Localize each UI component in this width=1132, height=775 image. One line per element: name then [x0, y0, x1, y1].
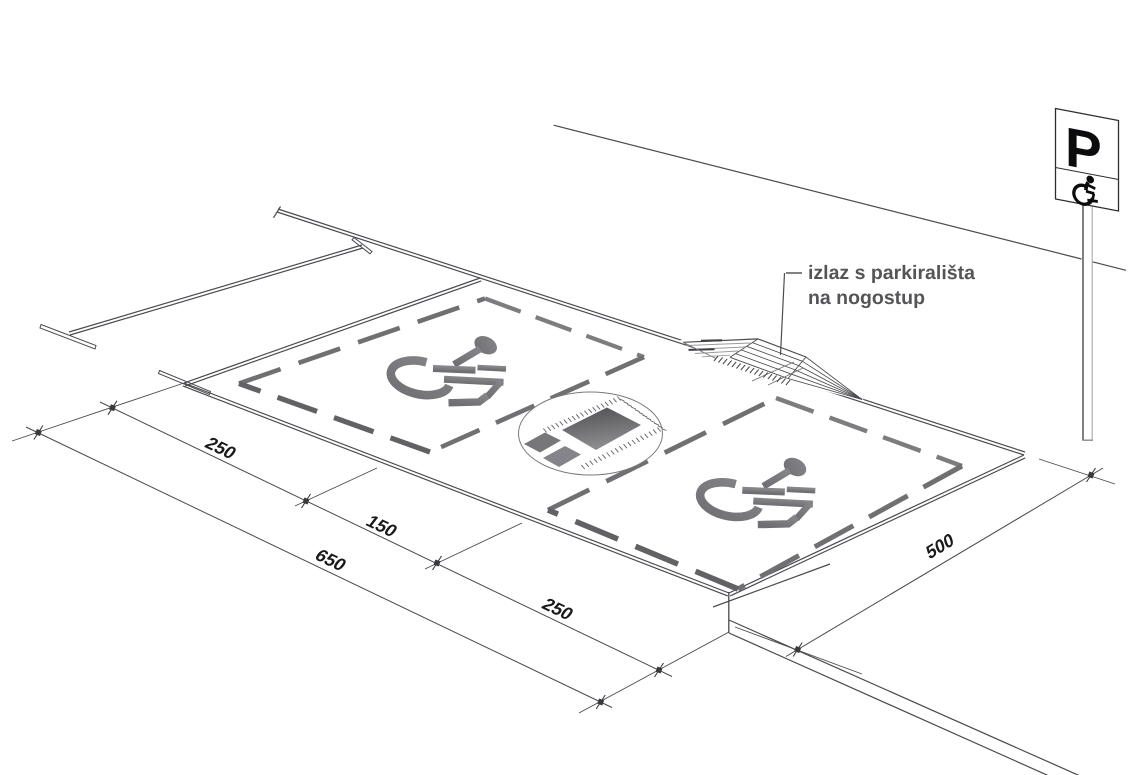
svg-text:izlaz s parkirališta: izlaz s parkirališta: [808, 262, 975, 284]
svg-text:na nogostup: na nogostup: [808, 287, 925, 309]
svg-text:P: P: [1065, 115, 1102, 183]
